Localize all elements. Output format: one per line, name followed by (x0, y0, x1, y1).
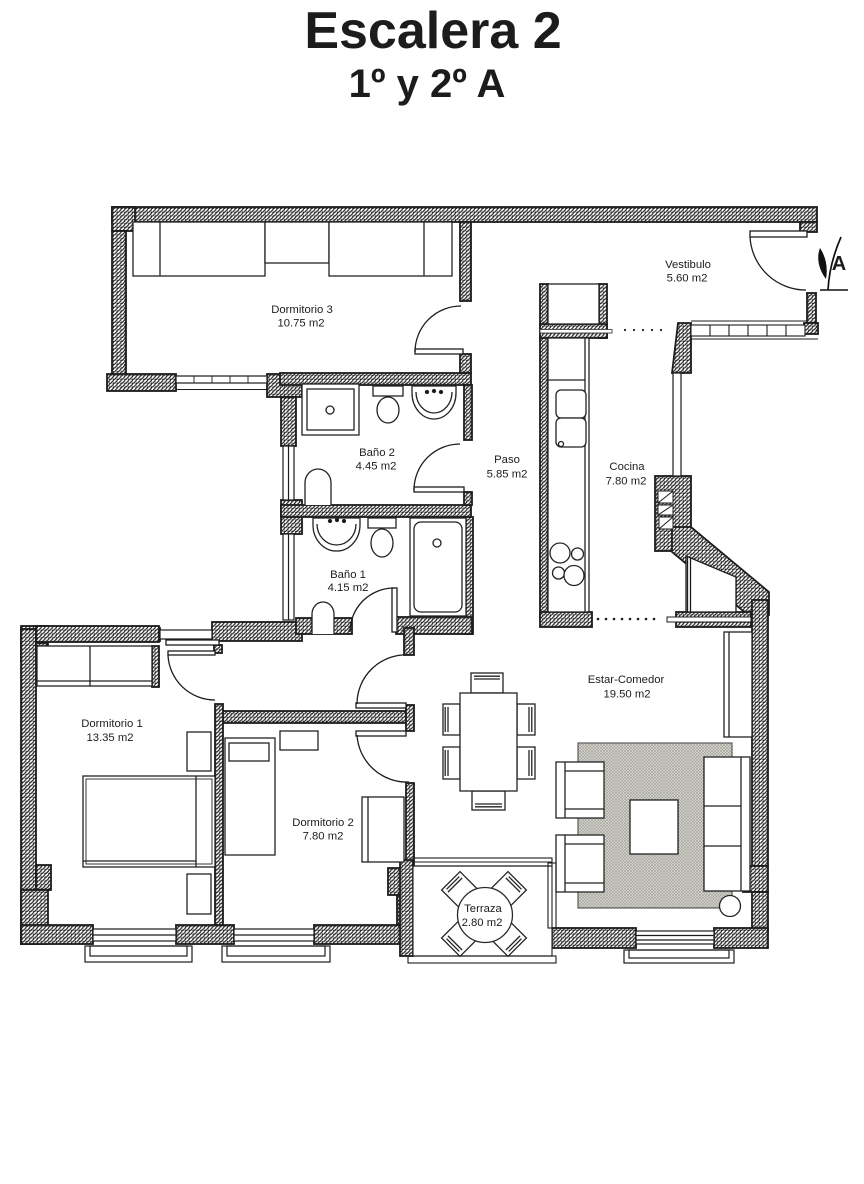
svg-text:Escalera 2: Escalera 2 (304, 2, 561, 60)
svg-text:Dormitorio 2: Dormitorio 2 (292, 817, 354, 829)
svg-text:Baño 1: Baño 1 (330, 569, 366, 581)
svg-text:4.15 m2: 4.15 m2 (328, 582, 369, 594)
svg-text:Vestibulo: Vestibulo (665, 259, 711, 271)
svg-text:Cocina: Cocina (609, 461, 645, 473)
svg-text:5.60 m2: 5.60 m2 (667, 273, 708, 285)
svg-text:19.50 m2: 19.50 m2 (603, 689, 650, 701)
svg-text:Dormitorio 3: Dormitorio 3 (271, 304, 333, 316)
svg-text:13.35 m2: 13.35 m2 (86, 732, 133, 744)
svg-text:7.80 m2: 7.80 m2 (606, 476, 647, 488)
svg-text:7.80 m2: 7.80 m2 (303, 831, 344, 843)
svg-text:5.85 m2: 5.85 m2 (487, 469, 528, 481)
svg-text:Baño 2: Baño 2 (359, 447, 395, 459)
svg-text:4.45 m2: 4.45 m2 (356, 461, 397, 473)
svg-text:Paso: Paso (494, 454, 520, 466)
svg-text:1º y 2º A: 1º y 2º A (349, 62, 506, 106)
svg-text:Terraza: Terraza (464, 903, 502, 915)
svg-text:Estar-Comedor: Estar-Comedor (588, 674, 665, 686)
svg-text:2.80 m2: 2.80 m2 (462, 917, 503, 929)
svg-text:10.75 m2: 10.75 m2 (277, 318, 324, 330)
svg-text:Dormitorio 1: Dormitorio 1 (81, 718, 143, 730)
svg-text:A: A (832, 253, 846, 275)
